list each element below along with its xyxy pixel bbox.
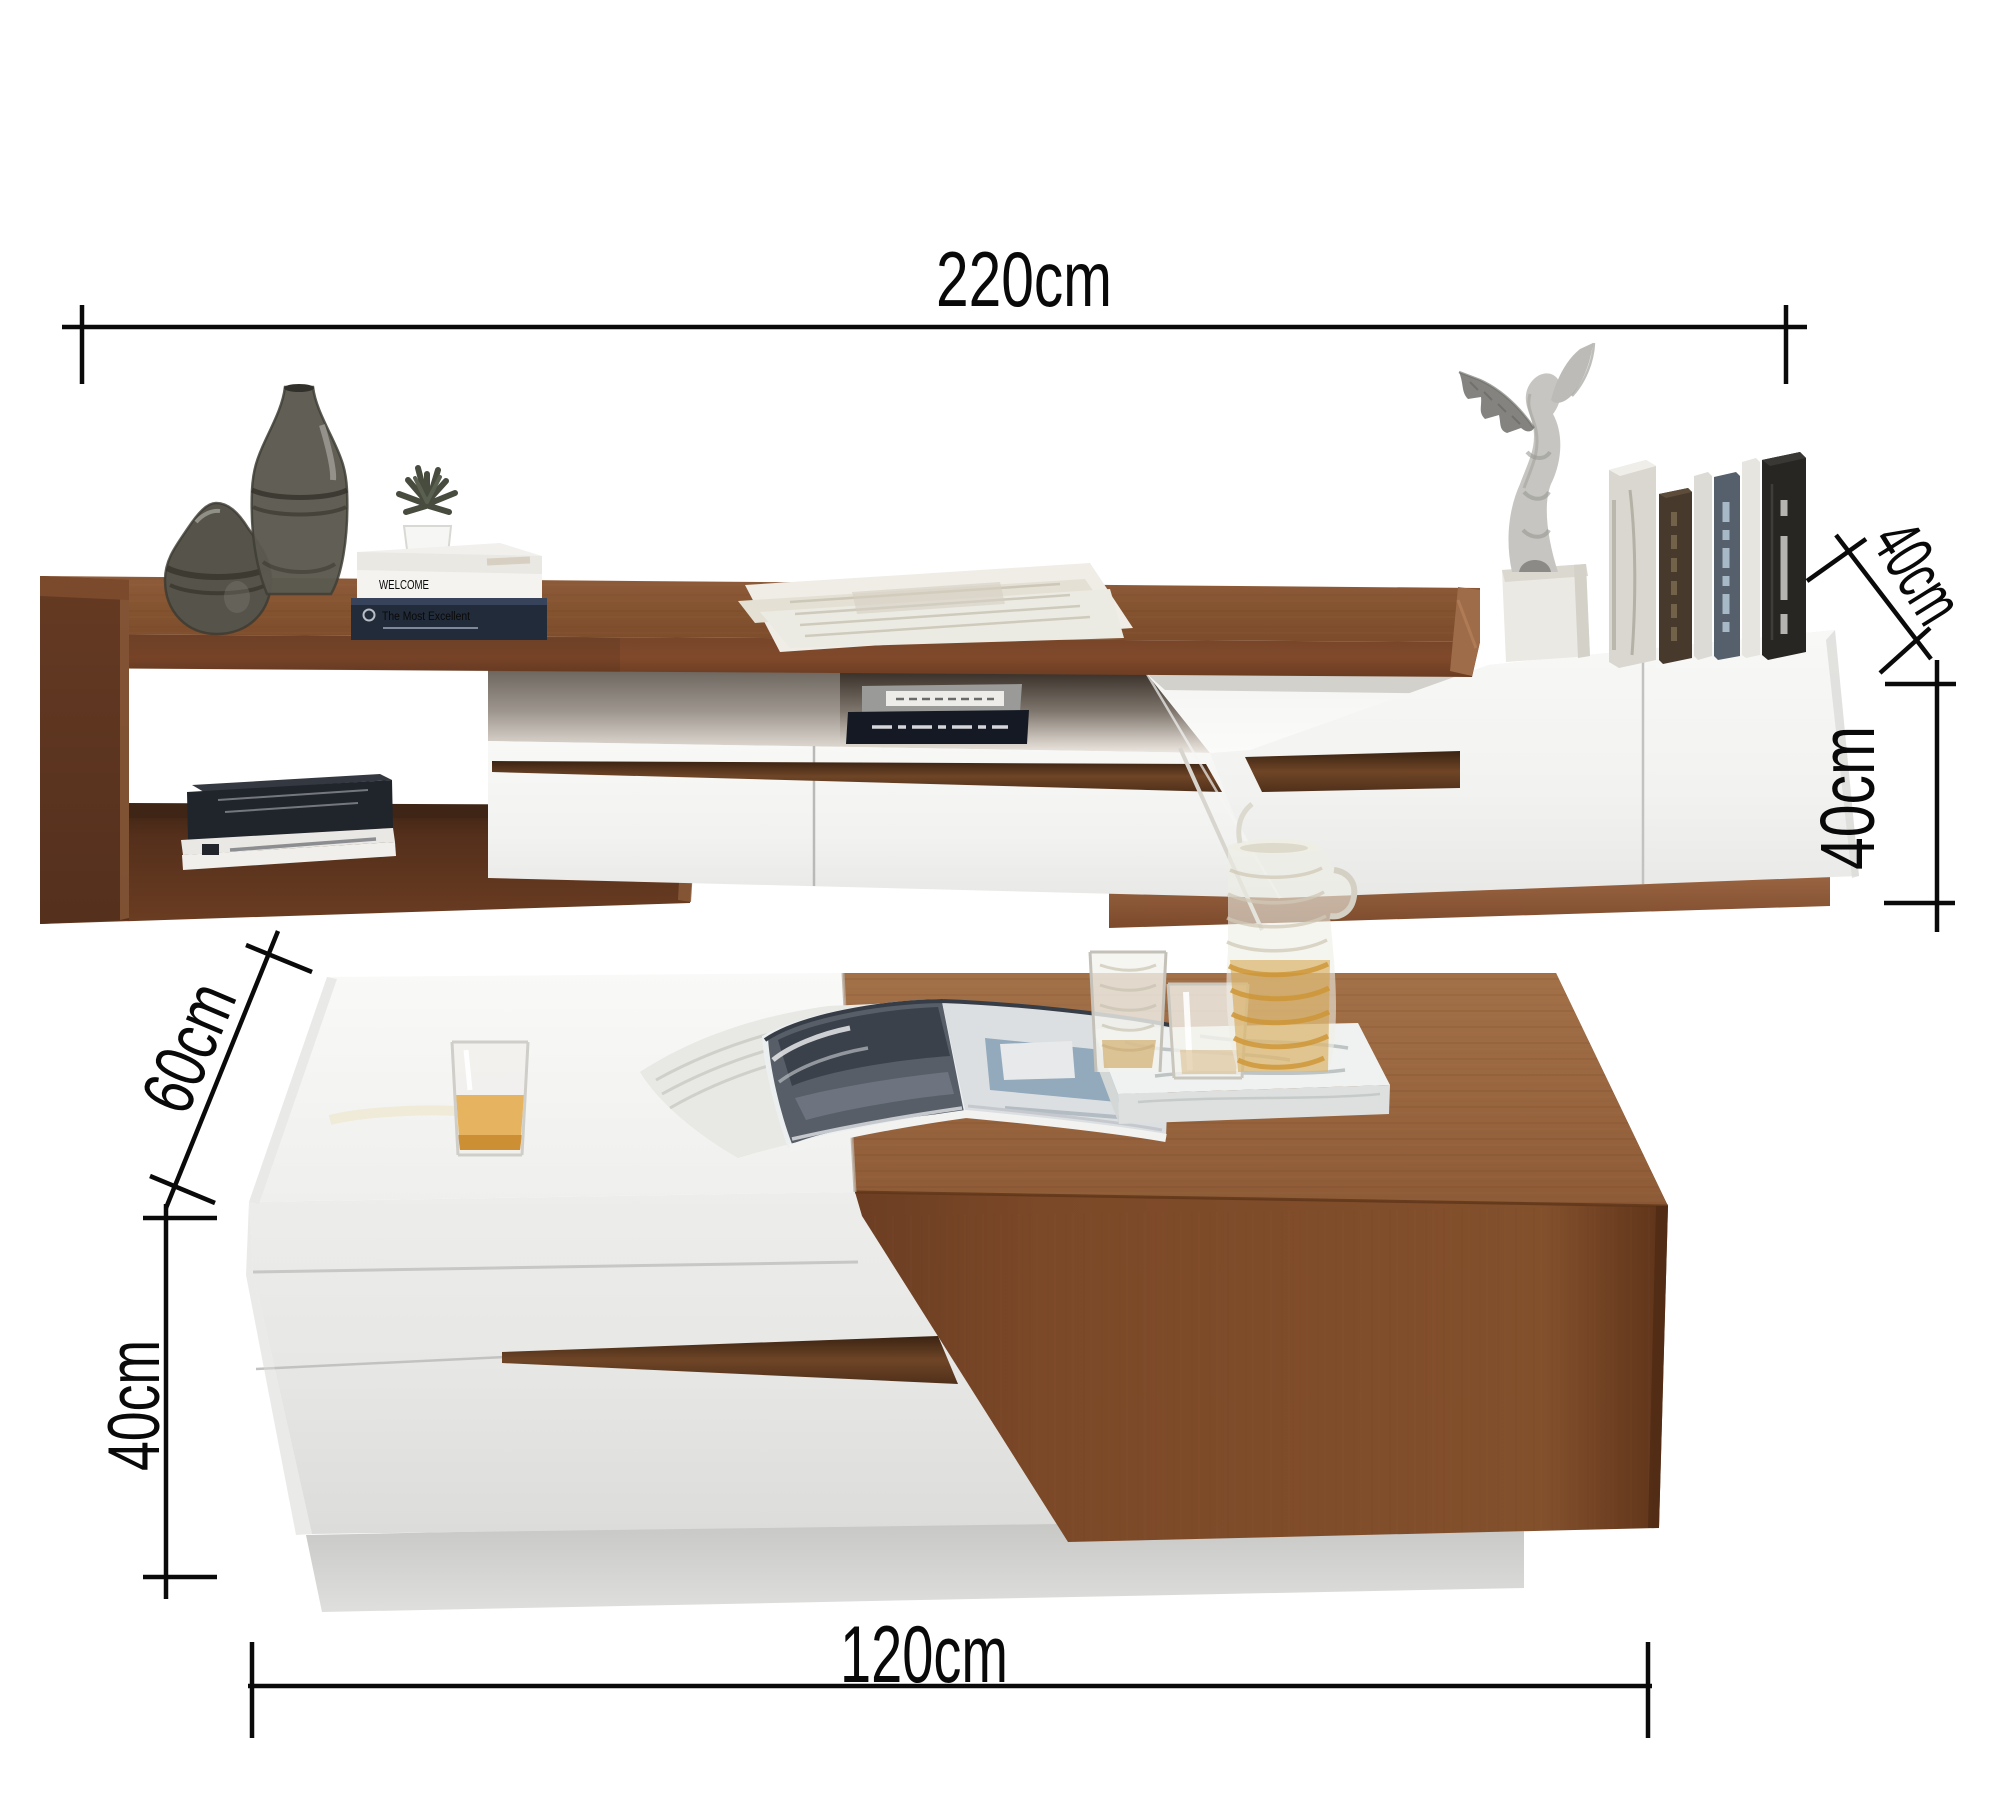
svg-text:40cm: 40cm: [1805, 726, 1891, 870]
svg-text:40cm: 40cm: [94, 1340, 175, 1471]
svg-text:WELCOME: WELCOME: [379, 577, 429, 592]
svg-text:120cm: 120cm: [840, 1610, 1008, 1700]
svg-text:The Most Excellent: The Most Excellent: [382, 611, 471, 623]
svg-text:220cm: 220cm: [936, 235, 1112, 323]
